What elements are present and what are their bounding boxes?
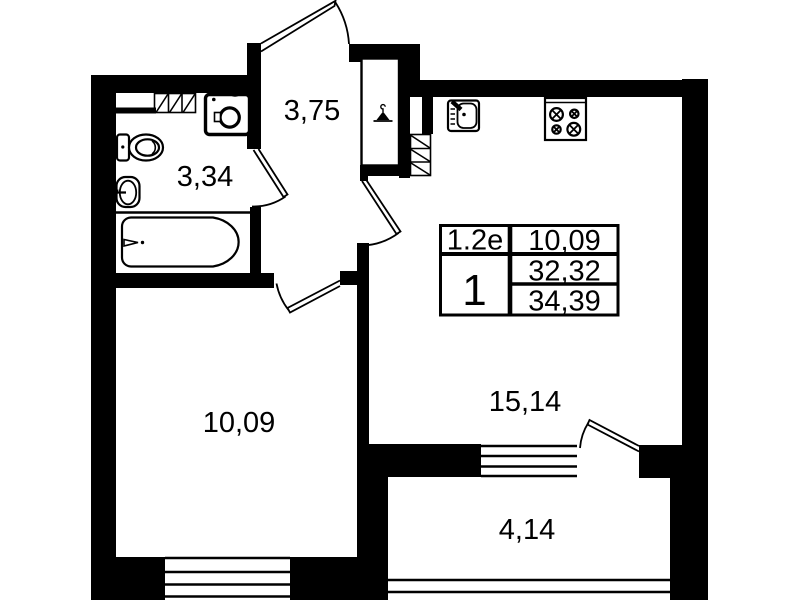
svg-text:15,14: 15,14 [489,386,562,418]
svg-text:4,14: 4,14 [499,514,555,546]
svg-text:10,09: 10,09 [528,225,601,257]
svg-text:3,75: 3,75 [284,95,340,127]
svg-text:3,34: 3,34 [177,161,233,193]
svg-text:1: 1 [462,266,486,315]
svg-text:1.2е: 1.2е [447,225,503,257]
svg-text:10,09: 10,09 [203,407,276,439]
svg-text:32,32: 32,32 [528,256,601,288]
svg-text:34,39: 34,39 [528,286,601,318]
